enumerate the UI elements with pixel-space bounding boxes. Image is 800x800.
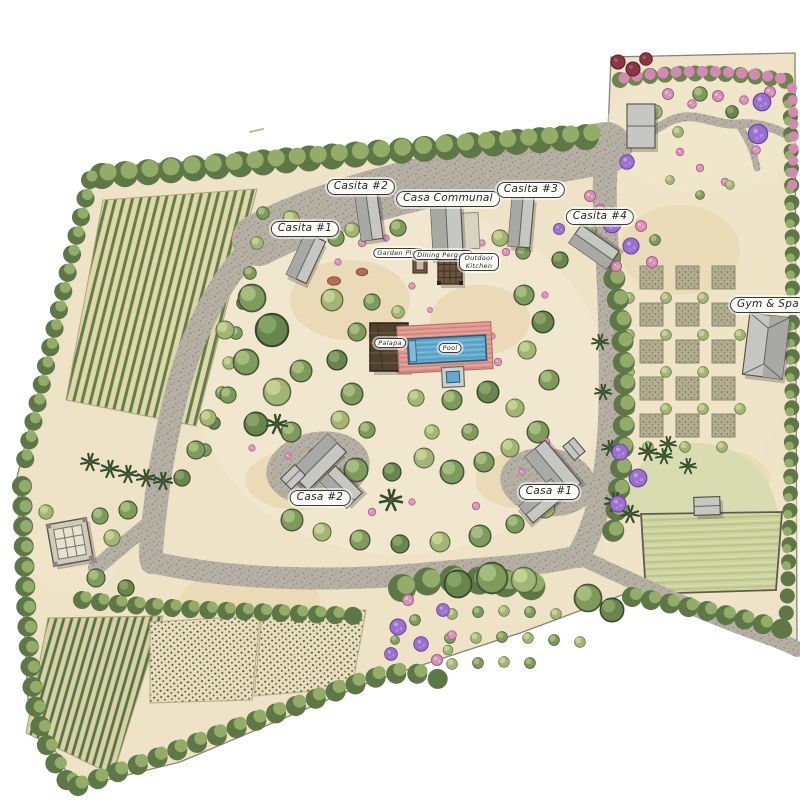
label-outdoor-kitchen: Outdoor Kitchen: [459, 253, 499, 271]
label-palapa: Palapa: [374, 338, 406, 348]
label-casita-4: Casita #4: [566, 209, 634, 225]
lawn-pavilion: [694, 496, 724, 519]
site-plan-illustration: [0, 0, 800, 800]
label-casita-1: Casita #1: [271, 221, 339, 237]
label-casa-1: Casa #1: [519, 484, 580, 500]
building-northeast: [627, 104, 658, 152]
site-plan: Casita #2 Casa Communal Casita #3 Casita…: [0, 0, 800, 800]
building-gym-spa: [742, 313, 793, 384]
stray-pencil-mark: [250, 129, 263, 132]
label-casa-2: Casa #2: [290, 490, 351, 506]
label-gym-spa: Gym & Spa: [730, 297, 800, 313]
label-pool: Pool: [439, 343, 462, 353]
greenhouse: [45, 516, 96, 570]
label-casita-2: Casita #2: [327, 179, 395, 195]
label-casa-communal: Casa Communal: [396, 191, 500, 207]
pool-steps: [409, 341, 417, 362]
spa-hot-tub: [441, 366, 464, 387]
building-casita-3: [508, 196, 538, 252]
label-casita-3: Casita #3: [497, 182, 565, 198]
